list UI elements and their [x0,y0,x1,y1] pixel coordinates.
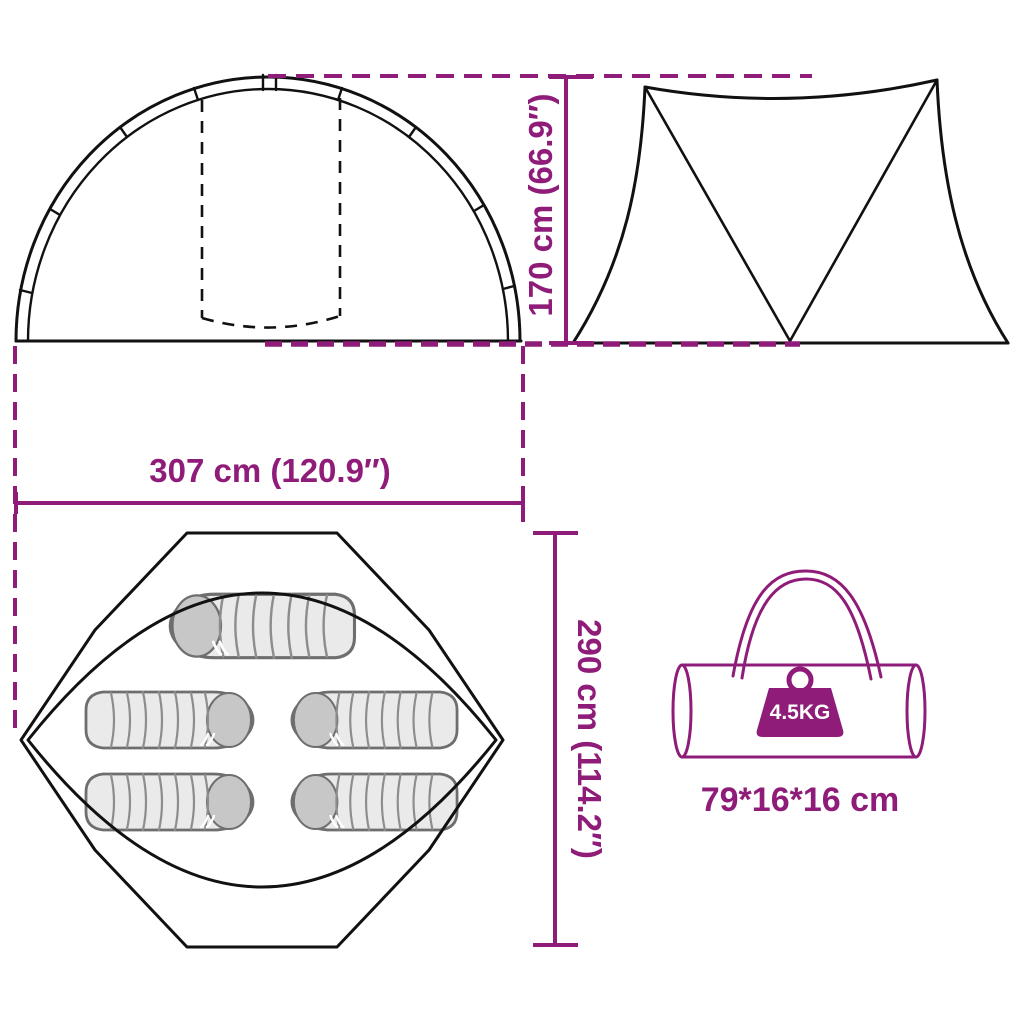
carry-bag [673,571,925,757]
tent-arch-outer [16,77,520,341]
bag-weight-label: 4.5KG [745,700,855,726]
tent-dimensions-diagram: 170 cm (66.9″) 307 cm (120.9″) 290 cm (1… [0,0,1024,1024]
tent-top-view [21,533,503,947]
front-left-seam [645,87,790,341]
width-dimension [15,346,523,735]
sleeping-bags [86,594,457,830]
tent-arch-inner [28,89,508,341]
front-left-edge [573,87,645,343]
tent-door-dashed [202,98,340,328]
sleeping-bag-icon [292,692,457,748]
tent-pole-segment-ticks [20,75,514,293]
sleeping-bag-icon [86,774,253,830]
sleeping-bag-icon [292,774,457,830]
bag-left-end [673,665,691,757]
front-right-seam [790,80,937,341]
front-top-edge [645,80,937,98]
front-right-edge [937,80,1008,343]
bag-pack-size-label: 79*16*16 cm [650,781,950,819]
diagram-canvas [0,0,1024,1024]
depth-dimension-label: 290 cm (114.2″) [571,609,607,869]
weight-loop [789,669,811,691]
sleeping-bag-icon [86,692,253,748]
width-dimension-label: 307 cm (120.9″) [70,452,470,490]
tent-side-view [16,75,521,341]
tent-front-view [573,80,1008,343]
bag-right-end [907,665,925,757]
height-dimension-label: 170 cm (66.9″) [523,75,559,335]
